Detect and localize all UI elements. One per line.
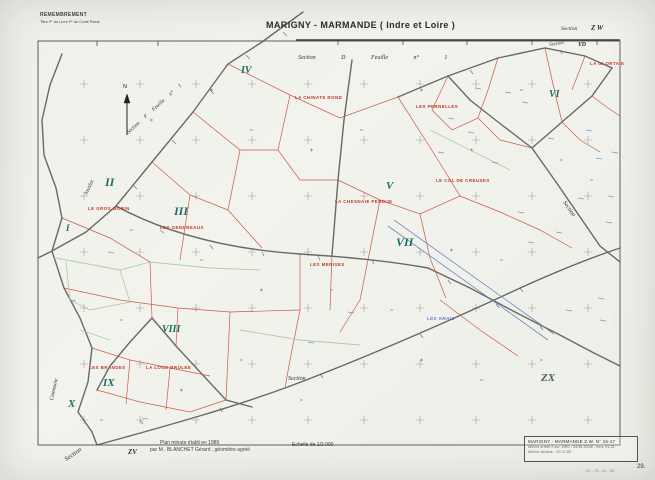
lieu-dit-chesnaie: LA CHESNAIE PERDUE xyxy=(335,200,393,205)
plan-note-line2: par M . BLANCHET Gérard , géomètre agréé xyxy=(150,448,250,453)
section-d-text: Section D Feuille n° 1 xyxy=(298,55,447,61)
cartouche-note-2: Affiché attribué - 20-07-89 xyxy=(528,450,634,454)
lieu-dit-brandes: LES BRANDES xyxy=(89,366,126,371)
lieu-dit-loge-brulee: LA LOGE BRÛLÉE xyxy=(146,366,191,371)
reference-numbers: 01 - 73 - 61 - 50 xyxy=(586,469,614,473)
lieu-dit-col-creuses: LE COL DE CREUSES xyxy=(436,179,490,184)
section-numeral-4: IV xyxy=(241,66,252,76)
scale-note: Echelle de 1/2 000 xyxy=(292,443,333,448)
cartouche-box: MARIGNY - MARMANDE Z.W. N° 15-17 Affiché… xyxy=(524,436,638,462)
cartouche-title: MARIGNY - MARMANDE Z.W. N° 15-17 xyxy=(528,439,634,444)
plan-note-line1: Plan minute établi en 1989 xyxy=(160,441,219,446)
section-margin-label: Section xyxy=(561,27,577,33)
section-margin-value: Z W xyxy=(591,25,603,32)
lieu-dit-gros-morin: LE GROS MORIN xyxy=(88,207,130,212)
section-numeral-1: I xyxy=(66,224,70,233)
section-numeral-3: III xyxy=(174,205,188,217)
north-label: N xyxy=(123,85,127,91)
section-numeral-7: VII xyxy=(396,236,413,248)
lieu-dit-grais-blue: LES GRAIS xyxy=(427,317,455,322)
remembrement-title: REMEMBREMENT xyxy=(40,13,87,18)
section-numeral-10: X xyxy=(68,399,75,410)
sheet-code-zv: ZV xyxy=(128,449,137,456)
lieu-dit-chinate: LA CHINATE ROND xyxy=(295,96,342,101)
section-numeral-8: VIII xyxy=(162,325,180,335)
section-numeral-2: II xyxy=(105,176,114,188)
map-linework xyxy=(0,0,655,480)
section-numeral-6: VI xyxy=(549,90,560,100)
remembrement-subtitle: Titre Iᵉʳ du Livre Iᵉʳ du Code Rural xyxy=(40,20,99,24)
lieu-dit-merises: LES MERISES xyxy=(310,263,345,268)
map-sheet: REMEMBREMENT Titre Iᵉʳ du Livre Iᵉʳ du C… xyxy=(0,0,655,480)
lieu-dit-pernelles: LES PERNELLES xyxy=(416,105,458,110)
cartouche-note-1: Affiché arrêté 2 avr. 1990 - 34/48-30/48… xyxy=(528,445,634,449)
lieu-dit-glortaie: LA GLORTAIE xyxy=(590,62,624,67)
section-numeral-5: V xyxy=(386,181,393,192)
sheet-code-yd: YD xyxy=(578,42,586,48)
section-numeral-9: IX xyxy=(103,378,115,389)
page-number: 29. xyxy=(637,464,645,470)
sheet-code-zx: ZX xyxy=(541,373,555,384)
lieu-dit-gendreaux: LES GENDREAUX xyxy=(160,226,204,231)
sheet-title: MARIGNY - MARMANDE ( Indre et Loire ) xyxy=(266,21,455,30)
section-bottom-label: Section xyxy=(288,376,306,382)
